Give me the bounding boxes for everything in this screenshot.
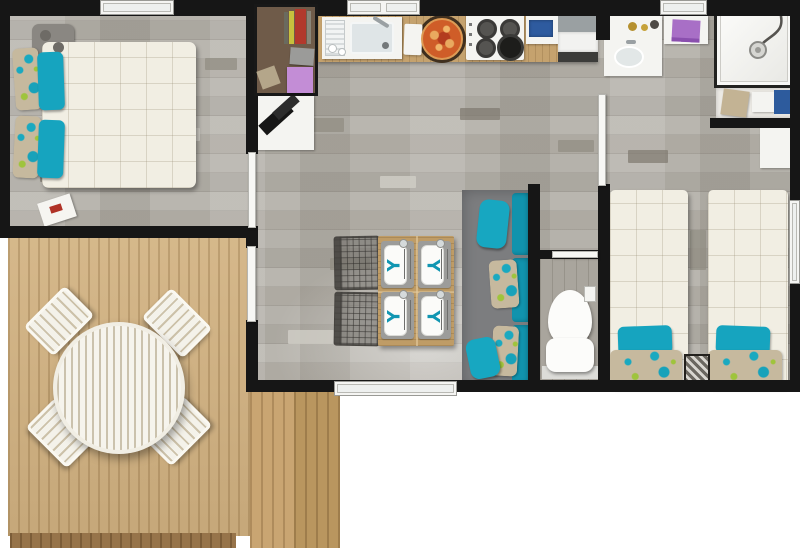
- dining-table: Y Y Y Y: [378, 236, 454, 346]
- double-bed: [42, 42, 196, 188]
- window-master-bedroom: [100, 0, 174, 15]
- cup: [338, 48, 346, 56]
- bath-box: [752, 92, 774, 112]
- teal-pillow: [37, 120, 65, 179]
- sink-drain: [382, 42, 389, 49]
- dining-chair: [334, 292, 381, 347]
- book: [307, 11, 311, 44]
- purple-towel: [671, 19, 700, 42]
- window-pane: [337, 384, 454, 393]
- terrace-step-upper: [250, 392, 294, 548]
- wall-divider-lower: [598, 184, 610, 392]
- doorway-wc-threshold: [552, 251, 598, 258]
- wall-bedroom1-bottom: [0, 226, 258, 238]
- shower-head-icon: [714, 4, 794, 88]
- gray-box: [289, 47, 314, 66]
- blue-mat: [774, 90, 790, 114]
- window-twin-bedroom-right: [789, 200, 800, 284]
- shower-enclosure: [714, 4, 794, 88]
- sofa-cushion-teal: [476, 199, 511, 250]
- wall-bottom: [246, 380, 800, 392]
- round-garden-table: [53, 322, 185, 454]
- glass: [436, 239, 445, 248]
- wall-entrance-upper: [246, 228, 258, 248]
- washbasin-faucet: [626, 40, 636, 44]
- hob-burner: [477, 19, 497, 39]
- place-setting: Y: [381, 292, 414, 339]
- wall-right: [790, 0, 800, 392]
- window-pane: [792, 203, 797, 281]
- teal-napkin: Y: [424, 310, 441, 322]
- appliance-front: [558, 32, 598, 52]
- door-master-bedroom: [248, 152, 256, 228]
- glass: [399, 290, 408, 299]
- toilet-tank: [546, 338, 594, 372]
- blue-cloth: [529, 20, 553, 37]
- teal-napkin: Y: [424, 259, 441, 271]
- sofa-cushion-patterned: [488, 259, 519, 309]
- purple-box: [287, 67, 313, 93]
- gold-soap: [641, 24, 648, 31]
- cutlery: [404, 300, 411, 330]
- cutting-board: [403, 24, 422, 56]
- cutlery: [404, 249, 411, 279]
- hob-burner: [476, 38, 496, 58]
- terrace-step-lower: [294, 392, 340, 548]
- teal-napkin: Y: [387, 259, 404, 271]
- hob-burner-large: [497, 34, 524, 61]
- place-setting: Y: [418, 241, 451, 288]
- wall-bath-bedroom2: [710, 118, 795, 128]
- book: [295, 9, 306, 44]
- pizza: [421, 18, 463, 60]
- teal-pillow: [37, 52, 65, 111]
- floor-plank-patch: [205, 58, 237, 70]
- hob-knobs: [469, 20, 472, 46]
- window-pane: [386, 3, 417, 12]
- patterned-pillow: [708, 350, 782, 384]
- cup: [328, 44, 337, 53]
- door-twin-bedroom: [598, 94, 606, 186]
- place-setting: Y: [381, 241, 414, 288]
- terrace-edge: [10, 533, 236, 548]
- washbasin-bowl: [614, 46, 644, 68]
- dining-chair: [334, 236, 381, 291]
- appliance-base: [558, 52, 598, 62]
- wall-sofa: [528, 184, 540, 392]
- floor-plank-patch: [380, 176, 416, 188]
- wall-entrance-lower: [246, 320, 258, 392]
- wall-lamp-knob: [40, 30, 51, 41]
- teal-napkin: Y: [387, 310, 404, 322]
- wall-divider-top: [596, 0, 610, 40]
- cutlery: [441, 300, 448, 330]
- wall-left: [0, 0, 10, 238]
- window-pane: [350, 3, 381, 12]
- floor-plank-patch: [690, 230, 706, 270]
- dark-cup: [650, 20, 659, 29]
- gold-soap: [628, 22, 637, 31]
- book: [284, 12, 288, 44]
- window-pane: [103, 3, 171, 12]
- floor-plank-patch: [460, 108, 500, 120]
- toilet-roll-holder: [584, 286, 596, 302]
- floorplan-canvas: Y Y Y Y: [0, 0, 800, 548]
- window-pane: [663, 3, 704, 12]
- book: [289, 11, 294, 44]
- floor-plank-patch: [628, 150, 668, 163]
- floor-plank-patch: [558, 140, 594, 152]
- white-dresser: [760, 126, 790, 168]
- window-bathroom: [660, 0, 707, 15]
- glass: [399, 239, 408, 248]
- floor-plank-patch: [288, 330, 334, 344]
- window-kitchen: [347, 0, 420, 15]
- cutlery: [441, 249, 448, 279]
- door-terrace-entrance: [247, 246, 256, 322]
- beige-towel: [720, 88, 749, 117]
- patterned-pillow: [610, 350, 682, 384]
- place-setting: Y: [418, 292, 451, 339]
- appliance-top: [558, 14, 598, 32]
- window-living-bottom: [334, 381, 457, 396]
- glass: [436, 290, 445, 299]
